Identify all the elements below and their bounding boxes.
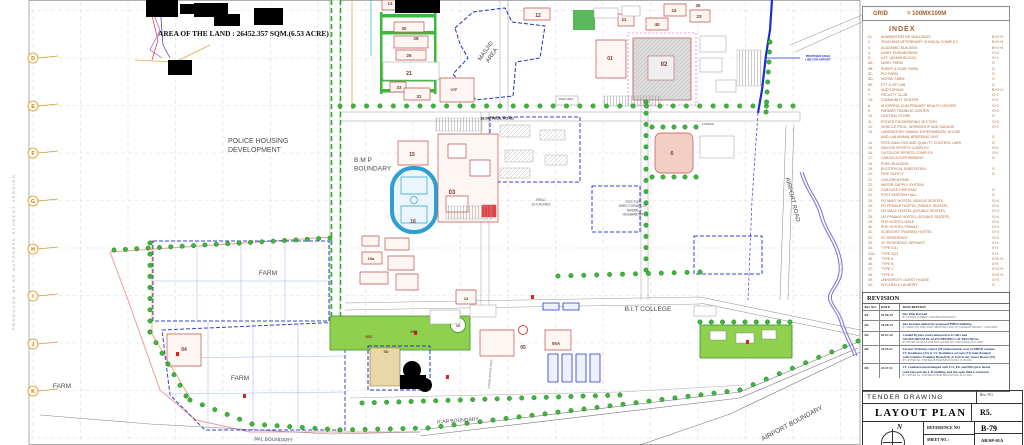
tree-icon: [672, 125, 676, 129]
map-label: MASJIDAREA: [477, 40, 501, 66]
tree-icon: [738, 388, 742, 392]
tree-icon: [294, 238, 298, 242]
tree-icon: [520, 396, 524, 400]
tree-icon: [538, 104, 542, 108]
tree-icon: [650, 125, 654, 129]
tree-icon: [633, 272, 637, 276]
tree-icon: [661, 125, 665, 129]
tree-icon: [684, 104, 688, 108]
tree-icon: [618, 393, 622, 397]
tree-icon: [237, 417, 241, 421]
building-number: 23: [696, 14, 702, 19]
tree-icon: [250, 422, 254, 426]
tree-icon: [172, 373, 176, 377]
tree-icon: [698, 270, 702, 274]
tree-icon: [148, 308, 152, 312]
building-number: 12: [535, 13, 541, 19]
autodesk-watermark-left: PRODUCED BY AN AUTODESK STUDENT VERSION: [11, 174, 16, 330]
revision-header-date: DATE: [880, 304, 901, 310]
tree-icon: [738, 104, 742, 108]
tree-icon: [384, 400, 388, 404]
tree-icon: [544, 395, 548, 399]
tree-icon: [160, 351, 164, 355]
tree-icon: [471, 104, 475, 108]
tree-icon: [112, 248, 116, 252]
tree-icon: [282, 238, 286, 242]
tree-icon: [169, 245, 173, 249]
tree-icon: [300, 425, 304, 429]
tree-icon: [511, 104, 515, 108]
tree-icon: [764, 104, 768, 108]
building-number: 33: [396, 85, 402, 90]
tree-icon: [644, 178, 648, 182]
tree-icon: [378, 104, 382, 108]
tree-icon: [790, 366, 794, 370]
tree-icon: [148, 241, 152, 245]
tree-icon: [732, 320, 736, 324]
tree-icon: [564, 104, 568, 108]
tree-icon: [556, 410, 560, 414]
revision-row: R4.24-05-21Farmer Training Centre (09) R…: [863, 346, 1009, 364]
building-number: 02: [661, 62, 668, 68]
tree-icon: [556, 274, 560, 278]
map-label: FIELD10.0 ACRES: [531, 198, 551, 206]
grid-value: = 100MX100M: [907, 11, 946, 17]
tree-icon: [743, 320, 747, 324]
tree-icon: [351, 104, 355, 108]
tree-icon: [644, 223, 648, 227]
drawing-sheet: DEFGHIJK AREA OF THE LAND : 26452.357 SQ…: [0, 0, 1024, 445]
index-box: INDEX 01.ADMINISTRATIVE BUILDINGSB+G+32.…: [862, 21, 1010, 292]
index-title: INDEX: [889, 26, 1009, 33]
grid-label: GRID: [873, 11, 907, 17]
tree-icon: [148, 296, 152, 300]
tree-icon: [694, 125, 698, 129]
tree-icon: [409, 399, 413, 403]
tree-icon: [712, 391, 716, 395]
building-number: 01: [607, 56, 613, 62]
building-number: 40: [654, 22, 660, 27]
tree-icon: [650, 175, 654, 179]
tree-icon: [543, 412, 547, 416]
tree-icon: [764, 110, 768, 114]
grid-row-label: J: [32, 342, 35, 348]
tree-icon: [313, 426, 317, 430]
tree-icon: [765, 320, 769, 324]
tree-icon: [262, 423, 266, 427]
tree-icon: [604, 104, 608, 108]
building-number: 19a: [368, 256, 375, 261]
grid-row-label: H: [31, 247, 35, 253]
tree-icon: [686, 394, 690, 398]
map-label: POLICE HOUSINGDEVELOPMENT: [228, 138, 288, 154]
tree-icon: [644, 104, 648, 108]
tree-icon: [401, 426, 405, 430]
tree-icon: [644, 145, 648, 149]
map-label: FARM: [231, 375, 249, 382]
tree-icon: [647, 399, 651, 403]
tree-icon: [720, 320, 724, 324]
building-number: 05C: [365, 334, 372, 339]
tree-icon: [148, 285, 152, 289]
tree-icon: [725, 389, 729, 393]
sheet-no-label: SHEET NO. :: [924, 435, 974, 445]
tree-icon: [661, 175, 665, 179]
map-label: FARM: [259, 270, 277, 277]
tree-icon: [830, 350, 834, 354]
building-number: 26: [406, 53, 412, 58]
tree-icon: [391, 104, 395, 108]
tree-icon: [328, 236, 332, 240]
tree-icon: [671, 104, 675, 108]
tree-icon: [724, 104, 728, 108]
compass-icon: [881, 431, 905, 445]
tree-icon: [621, 402, 625, 406]
tree-icon: [764, 100, 768, 104]
tree-icon: [569, 394, 573, 398]
reference-no-label: REFERENCE NO: [924, 422, 974, 435]
tree-icon: [426, 426, 430, 430]
tree-icon: [148, 330, 152, 334]
tree-icon: [582, 407, 586, 411]
tree-icon: [751, 104, 755, 108]
map-label: FARM: [53, 383, 71, 390]
index-row: 40.KITCHEN & LAUNDRYG: [863, 283, 1009, 288]
building-number: 05B: [410, 329, 417, 334]
tree-icon: [350, 428, 354, 432]
tree-icon: [191, 243, 195, 247]
tree-icon: [495, 397, 499, 401]
tree-icon: [123, 247, 127, 251]
building-number: 11: [622, 17, 627, 22]
tree-icon: [388, 427, 392, 431]
tree-icon: [582, 273, 586, 277]
revision-row: R1.01-08-19Site Plan RevisedBY LETTER NU…: [863, 311, 1009, 321]
tree-icon: [644, 245, 648, 249]
map-label: PARK AREA: [559, 97, 574, 101]
tree-icon: [698, 104, 702, 108]
tree-icon: [644, 189, 648, 193]
tree-icon: [766, 80, 770, 84]
building-number: 5D: [383, 349, 388, 354]
tree-icon: [360, 401, 364, 405]
revision-table: REVISION Rev NO. DATE DESCRIPTION R1.01-…: [862, 292, 1010, 392]
tree-icon: [458, 398, 462, 402]
map-label: B.M PBOUNDARY: [354, 157, 392, 172]
tree-icon: [644, 257, 648, 261]
revision-header: Rev NO. DATE DESCRIPTION: [863, 304, 1009, 311]
tree-icon: [146, 246, 150, 250]
tree-icon: [491, 418, 495, 422]
tree-icon: [363, 427, 367, 431]
tree-icon: [765, 90, 769, 94]
tree-icon: [644, 212, 648, 216]
tree-icon: [338, 104, 342, 108]
map-label: CANDID BYPASS ROAD: [487, 359, 494, 388]
tree-icon: [659, 271, 663, 275]
tree-icon: [777, 372, 781, 376]
tree-icon: [532, 396, 536, 400]
revision-header-no: Rev NO.: [863, 304, 880, 310]
tree-icon: [225, 412, 229, 416]
tree-icon: [200, 403, 204, 407]
tree-icon: [593, 394, 597, 398]
tree-icon: [260, 240, 264, 244]
building-number: 6: [670, 151, 673, 157]
map-label: SITE FORDIRECTORATE OFANIMALHUSBANDRY: [619, 200, 648, 216]
tree-icon: [413, 426, 417, 430]
tree-icon: [446, 398, 450, 402]
tree-icon: [178, 383, 182, 387]
tree-icon: [372, 400, 376, 404]
tree-icon: [685, 270, 689, 274]
map-label: ICAR BOUNDARY: [437, 417, 480, 426]
tree-icon: [591, 104, 595, 108]
building-number: 04: [181, 347, 187, 353]
building-number: 28: [413, 36, 419, 41]
tree-icon: [214, 242, 218, 246]
building-number: 26: [695, 3, 701, 8]
tree-icon: [507, 396, 511, 400]
tree-icon: [530, 413, 534, 417]
map-frame: [29, 1, 860, 445]
tree-icon: [166, 362, 170, 366]
tree-icon: [316, 236, 320, 240]
reference-no-value: B-79: [975, 422, 1022, 434]
tree-icon: [434, 399, 438, 403]
map-label: PROPOSED 33KVALINE FOR AIRPORT: [805, 54, 831, 61]
building-number: 24: [671, 8, 677, 13]
tree-icon: [578, 104, 582, 108]
building-number: 05A: [552, 341, 561, 346]
tree-icon: [203, 243, 207, 247]
tree-icon: [767, 60, 771, 64]
tree-icon: [683, 175, 687, 179]
building-number: 30: [401, 26, 407, 31]
grid-row-label: K: [31, 389, 35, 395]
tree-icon: [767, 50, 771, 54]
map-label: JAIL BOUNDARY: [253, 436, 293, 443]
building-number: 32: [416, 94, 422, 99]
tree-icon: [646, 271, 650, 275]
tree-icon: [644, 100, 648, 104]
title-block: TENDER DRAWING Rev. NO. LAYOUT PLAN R5. …: [862, 390, 1023, 445]
map-label: AREA OF THE LAND : 26452.357 SQM.(6.53 A…: [158, 29, 329, 38]
tree-icon: [504, 416, 508, 420]
north-label: N: [897, 423, 902, 431]
tree-icon: [325, 427, 329, 431]
tree-icon: [248, 240, 252, 244]
building-number: 10: [456, 323, 461, 328]
tree-icon: [694, 175, 698, 179]
tree-icon: [673, 396, 677, 400]
tree-icon: [397, 400, 401, 404]
tree-icon: [226, 242, 230, 246]
tree-icon: [581, 394, 585, 398]
revision-row: R5.23-07-21VC residence interchanged wit…: [863, 364, 1009, 377]
map-label: AIRPORT ROAD: [784, 177, 801, 223]
tree-icon: [817, 355, 821, 359]
tree-icon: [768, 40, 772, 44]
tree-icon: [644, 234, 648, 238]
tree-icon: [180, 244, 184, 248]
tree-icon: [444, 104, 448, 108]
building-number: 07F: [451, 87, 458, 92]
rev-no-label: Rev. NO.: [977, 391, 1022, 403]
building-number: 21: [406, 71, 412, 77]
tree-icon: [135, 247, 139, 251]
sheet-no-value: AR/SP-01A: [975, 434, 1022, 445]
building-number: 15: [409, 152, 415, 158]
tree-icon: [305, 237, 309, 241]
tree-icon: [148, 319, 152, 323]
tree-icon: [484, 104, 488, 108]
tree-icon: [856, 339, 860, 343]
tree-icon: [754, 320, 758, 324]
tree-icon: [458, 104, 462, 108]
rev-no-value: R5.: [972, 404, 1022, 421]
tree-icon: [644, 133, 648, 137]
tree-icon: [803, 361, 807, 365]
tree-icon: [634, 401, 638, 405]
tree-icon: [764, 377, 768, 381]
tree-icon: [698, 320, 702, 324]
tree-icon: [148, 252, 152, 256]
tree-icon: [644, 167, 648, 171]
tree-icon: [483, 397, 487, 401]
grid-scale-box: GRID = 100MX100M: [862, 6, 1010, 21]
tree-icon: [778, 104, 782, 108]
tree-icon: [751, 382, 755, 386]
building-number: 13: [464, 296, 469, 301]
tree-icon: [154, 341, 158, 345]
tree-icon: [213, 407, 217, 411]
tender-drawing-label: TENDER DRAWING: [863, 391, 977, 403]
tree-icon: [188, 398, 192, 402]
tree-icon: [672, 271, 676, 275]
revision-title: REVISION: [863, 293, 1009, 304]
grid-row-label: D: [31, 56, 35, 62]
map-label: 18.0M WIDE ROAD: [480, 117, 514, 121]
tree-icon: [683, 125, 687, 129]
north-compass: N: [863, 422, 924, 445]
tree-icon: [524, 104, 528, 108]
tree-icon: [498, 104, 502, 108]
tree-icon: [376, 427, 380, 431]
map-label: COMFED: [702, 122, 714, 126]
tree-icon: [184, 394, 188, 398]
tree-icon: [618, 104, 622, 108]
tree-icon: [271, 239, 275, 243]
tree-icon: [595, 405, 599, 409]
index-list: 01.ADMINISTRATIVE BUILDINGSB+G+32.TEACHI…: [863, 35, 1009, 289]
tree-icon: [431, 104, 435, 108]
tree-icon: [551, 104, 555, 108]
tree-icon: [364, 104, 368, 108]
revision-row: R2.18-08-19Site location added for propo…: [863, 321, 1009, 331]
grid-row-label: G: [31, 199, 35, 205]
revision-row: R3.02-07-20Candid Bypass road connected …: [863, 332, 1009, 346]
tree-icon: [660, 397, 664, 401]
tree-icon: [658, 104, 662, 108]
tree-icon: [338, 428, 342, 432]
tree-icon: [148, 274, 152, 278]
tree-icon: [607, 272, 611, 276]
map-label: AIRPORT BOUNDARY: [761, 404, 825, 442]
tree-icon: [517, 415, 521, 419]
map-grid-lines: [30, 2, 859, 443]
tree-icon: [843, 344, 847, 348]
tree-icon: [788, 320, 792, 324]
building-number: 03: [449, 190, 456, 196]
tree-icon: [766, 70, 770, 74]
tree-icon: [157, 245, 161, 249]
tree-icon: [288, 424, 292, 428]
tree-icon: [608, 404, 612, 408]
tree-icon: [631, 104, 635, 108]
tree-icon: [569, 273, 573, 277]
tree-icon: [791, 104, 795, 108]
grid-row-bubbles: DEFGHIJK: [28, 53, 58, 396]
tree-icon: [404, 104, 408, 108]
tree-icon: [148, 263, 152, 267]
tree-icon: [237, 241, 241, 245]
revision-header-desc: DESCRIPTION: [900, 304, 1009, 310]
map-label: B.I.T COLLEGE: [625, 306, 672, 313]
tree-icon: [644, 111, 648, 115]
tree-icon: [595, 273, 599, 277]
grid-row-label: F: [31, 151, 34, 157]
legend-panel: GRID = 100MX100M INDEX 01.ADMINISTRATIVE…: [862, 0, 1022, 445]
tree-icon: [418, 104, 422, 108]
building-number: 14: [387, 1, 393, 6]
tree-icon: [606, 393, 610, 397]
tree-icon: [711, 104, 715, 108]
tree-icon: [470, 397, 474, 401]
building-number: 16: [410, 219, 416, 225]
tree-icon: [275, 424, 279, 428]
drawing-title: LAYOUT PLAN: [863, 404, 972, 421]
tree-icon: [644, 156, 648, 160]
tree-icon: [569, 408, 573, 412]
tree-icon: [709, 320, 713, 324]
tree-icon: [672, 175, 676, 179]
tree-icon: [556, 395, 560, 399]
tree-icon: [699, 393, 703, 397]
tree-icon: [777, 320, 781, 324]
tree-icon: [421, 399, 425, 403]
building-number: 05: [520, 345, 526, 351]
tree-icon: [644, 122, 648, 126]
tree-icon: [620, 272, 624, 276]
